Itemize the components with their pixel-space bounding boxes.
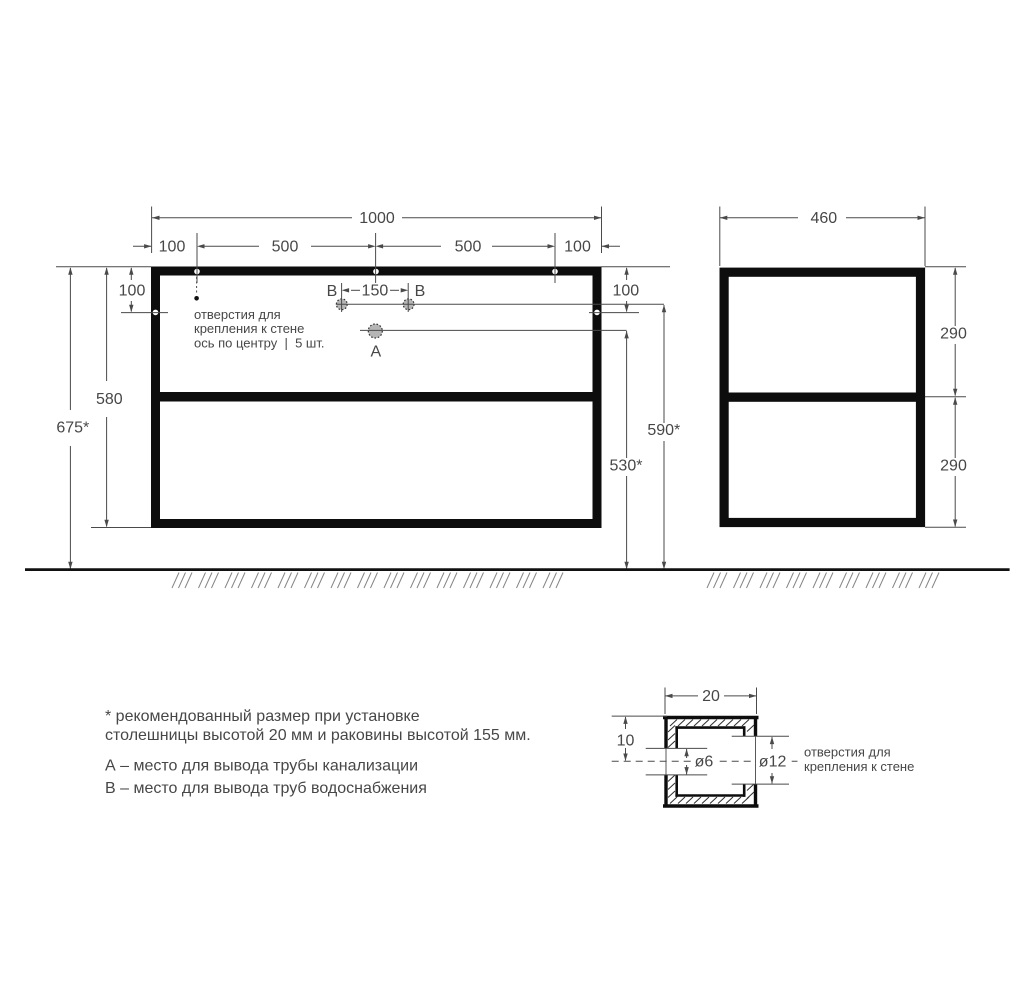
svg-text:100: 100 (159, 239, 186, 256)
svg-text:500: 500 (455, 239, 482, 256)
svg-text:100: 100 (119, 283, 146, 300)
svg-text:отверстия для: отверстия для (804, 745, 891, 760)
svg-text:10: 10 (617, 733, 635, 750)
svg-text:столешницы высотой 20 мм и рак: столешницы высотой 20 мм и раковины высо… (105, 727, 531, 744)
svg-text:290: 290 (940, 458, 967, 475)
svg-text:B: B (415, 283, 426, 300)
svg-text:100: 100 (564, 239, 591, 256)
svg-text:500: 500 (272, 239, 299, 256)
svg-text:B: B (327, 283, 338, 300)
svg-text:В – место для вывода труб водо: В – место для вывода труб водоснабжения (105, 780, 427, 797)
svg-text:590*: 590* (647, 422, 680, 439)
svg-text:460: 460 (810, 210, 837, 227)
svg-text:отверстия для: отверстия для (194, 307, 281, 322)
svg-text:530*: 530* (610, 458, 643, 475)
svg-text:20: 20 (702, 688, 720, 705)
svg-text:100: 100 (612, 283, 639, 300)
svg-text:ось по центру | 5 шт.: ось по центру | 5 шт. (194, 336, 324, 351)
svg-text:580: 580 (96, 391, 123, 408)
svg-text:крепления к стене: крепления к стене (804, 759, 914, 774)
svg-text:A: A (370, 344, 381, 361)
svg-text:А – место для вывода трубы кан: А – место для вывода трубы канализации (105, 758, 418, 775)
svg-text:крепления к стене: крепления к стене (194, 321, 304, 336)
svg-text:675*: 675* (56, 420, 89, 437)
svg-text:* рекомендованный размер при у: * рекомендованный размер при установке (105, 708, 420, 725)
svg-text:150: 150 (362, 283, 389, 300)
svg-text:ø12: ø12 (759, 754, 787, 771)
svg-text:ø6: ø6 (695, 754, 714, 771)
svg-text:1000: 1000 (359, 210, 395, 227)
svg-text:290: 290 (940, 326, 967, 343)
